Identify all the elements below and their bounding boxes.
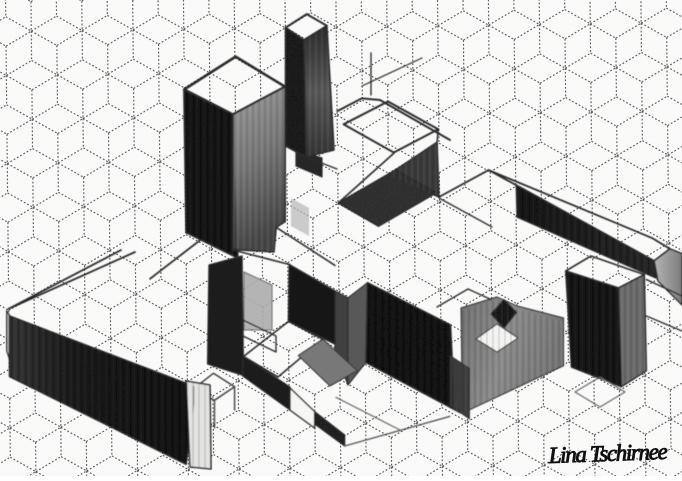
svg-text:Lina Tschirnee: Lina Tschirnee (547, 439, 668, 468)
